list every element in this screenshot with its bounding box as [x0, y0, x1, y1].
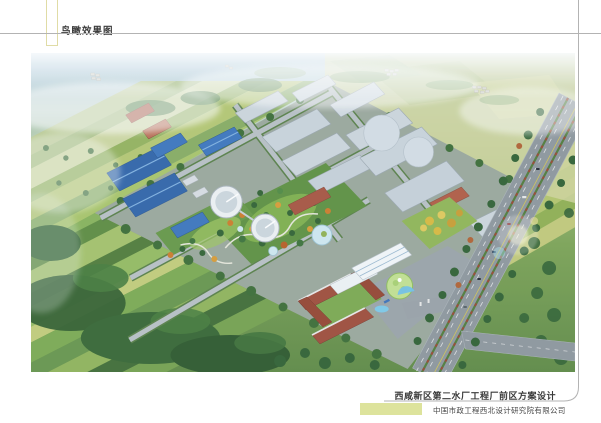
document-page: 鸟瞰效果图	[0, 0, 601, 423]
page-title: 鸟瞰效果图	[61, 23, 114, 37]
footer-accent-bar	[360, 403, 422, 415]
title-accent-box	[46, 0, 58, 46]
company-name: 中国市政工程西北设计研究院有限公司	[433, 405, 566, 416]
project-title: 西咸新区第二水厂工程厂前区方案设计	[394, 389, 556, 402]
color-cast	[31, 53, 575, 372]
aerial-rendering	[31, 53, 575, 372]
